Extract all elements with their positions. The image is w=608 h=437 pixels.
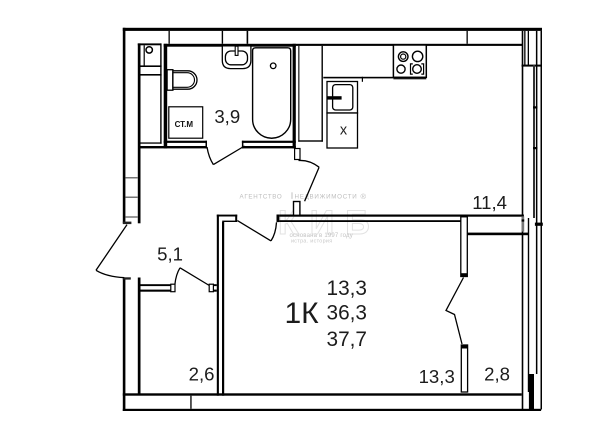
svg-text:2,8: 2,8 — [484, 364, 510, 385]
svg-text:2,6: 2,6 — [189, 363, 215, 384]
svg-text:НЕДВИЖИМОСТИ: НЕДВИЖИМОСТИ — [295, 193, 358, 200]
svg-text:1К: 1К — [285, 297, 320, 330]
svg-text:®: ® — [361, 192, 367, 201]
svg-text:АГЕНТСТВО: АГЕНТСТВО — [240, 193, 283, 200]
svg-text:37,7: 37,7 — [327, 328, 367, 351]
svg-text:13,3: 13,3 — [327, 277, 367, 300]
svg-text:11,4: 11,4 — [472, 192, 507, 213]
svg-text:13,3: 13,3 — [419, 366, 455, 387]
svg-text:5,1: 5,1 — [157, 244, 183, 265]
svg-text:истра. история: истра. история — [291, 239, 332, 245]
svg-text:СТ.М: СТ.М — [175, 120, 194, 129]
svg-text:3,9: 3,9 — [214, 106, 240, 127]
svg-text:36,3: 36,3 — [327, 302, 367, 325]
svg-text:x: x — [340, 123, 348, 139]
